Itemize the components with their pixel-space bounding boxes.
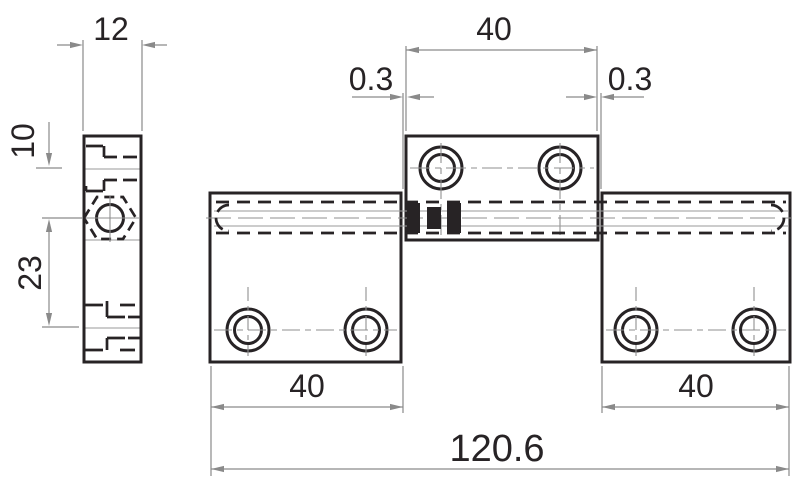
- hinge-drawing-svg: 12 10 23 40: [0, 0, 800, 482]
- barrel-hidden-lines: [206, 202, 792, 233]
- hidden-hole-bottom: [84, 301, 140, 350]
- dim-12-arrow-right: [70, 42, 83, 48]
- dim-overall-width: 120.6: [211, 428, 789, 472]
- dim-12-label: 12: [93, 11, 129, 47]
- dim-40-br-arrow-left: [602, 404, 615, 410]
- dim-40-top-arrow-left: [406, 47, 419, 53]
- dim-40-bl-label: 40: [289, 368, 325, 404]
- dim-40-top-label: 40: [476, 11, 512, 47]
- dim-23-label: 23: [12, 255, 48, 291]
- dim-left-leaf-width: 40: [211, 366, 403, 476]
- dim-right-leaf-width: 40: [602, 366, 789, 476]
- dim-12-extension-lines: [83, 40, 142, 131]
- dim-side-width: 12: [57, 11, 167, 131]
- dim-clearance-right: 0.3: [566, 61, 652, 189]
- dim-40-br-arrow-right: [776, 404, 789, 410]
- front-view: [206, 136, 792, 362]
- leaf-hole-vertical-centerlines: [248, 287, 754, 356]
- pin-section-hatch: [407, 203, 461, 233]
- dim-23-arrow-down: [46, 313, 52, 326]
- dimensions: 12 10 23 40: [5, 11, 789, 476]
- side-view: [84, 136, 141, 362]
- dim-120-label: 120.6: [449, 428, 544, 470]
- dim-40-top-extension-lines: [406, 46, 597, 131]
- dim-03-left-label: 0.3: [349, 61, 393, 97]
- dim-40-br-label: 40: [678, 368, 714, 404]
- dim-40-top-arrow-right: [584, 47, 597, 53]
- dim-12-arrow-left: [142, 42, 155, 48]
- drawing-canvas: 12 10 23 40: [0, 0, 800, 482]
- dim-knuckle-width: 40: [406, 11, 597, 131]
- dim-03-left-arrow-out: [407, 94, 420, 100]
- dim-23-extension-lines: [42, 218, 83, 327]
- dim-40-bl-arrow-right: [390, 404, 403, 410]
- dim-03-right-arrow-in: [584, 94, 597, 100]
- dim-03-right-label: 0.3: [608, 61, 652, 97]
- dim-23-arrow-up: [46, 219, 52, 232]
- dim-120-arrow-right: [776, 466, 789, 472]
- dim-40-bl-arrow-left: [211, 404, 224, 410]
- dim-hole-spacing: 23: [12, 218, 83, 327]
- dim-10-label: 10: [5, 123, 41, 159]
- dim-10-arrow-down: [46, 153, 52, 166]
- dim-120-arrow-left: [211, 466, 224, 472]
- dim-top-offset: 10: [5, 122, 62, 168]
